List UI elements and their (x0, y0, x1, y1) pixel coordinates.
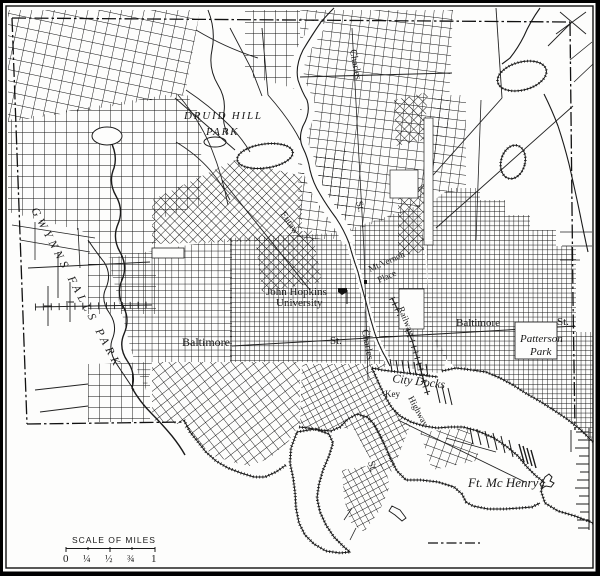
svg-text:Baltimore: Baltimore (182, 335, 230, 349)
svg-text:Park: Park (529, 346, 553, 358)
svg-text:Patterson: Patterson (519, 333, 563, 345)
svg-text:½: ½ (105, 554, 113, 565)
svg-text:¼: ¼ (83, 554, 91, 565)
svg-text:Baltimore: Baltimore (456, 317, 500, 329)
svg-text:Ft. Mc Henry: Ft. Mc Henry (467, 475, 539, 490)
svg-text:PARK: PARK (205, 126, 239, 138)
svg-text:SCALE OF MILES: SCALE OF MILES (72, 535, 156, 545)
svg-text:1: 1 (151, 553, 157, 565)
svg-text:0: 0 (63, 553, 69, 565)
svg-text:Key: Key (385, 389, 400, 399)
svg-text:St.: St. (557, 316, 569, 328)
svg-text:¾: ¾ (127, 554, 135, 565)
svg-text:DRUID HILL: DRUID HILL (183, 110, 263, 122)
svg-text:University: University (276, 297, 323, 309)
svg-text:St.: St. (330, 335, 342, 347)
